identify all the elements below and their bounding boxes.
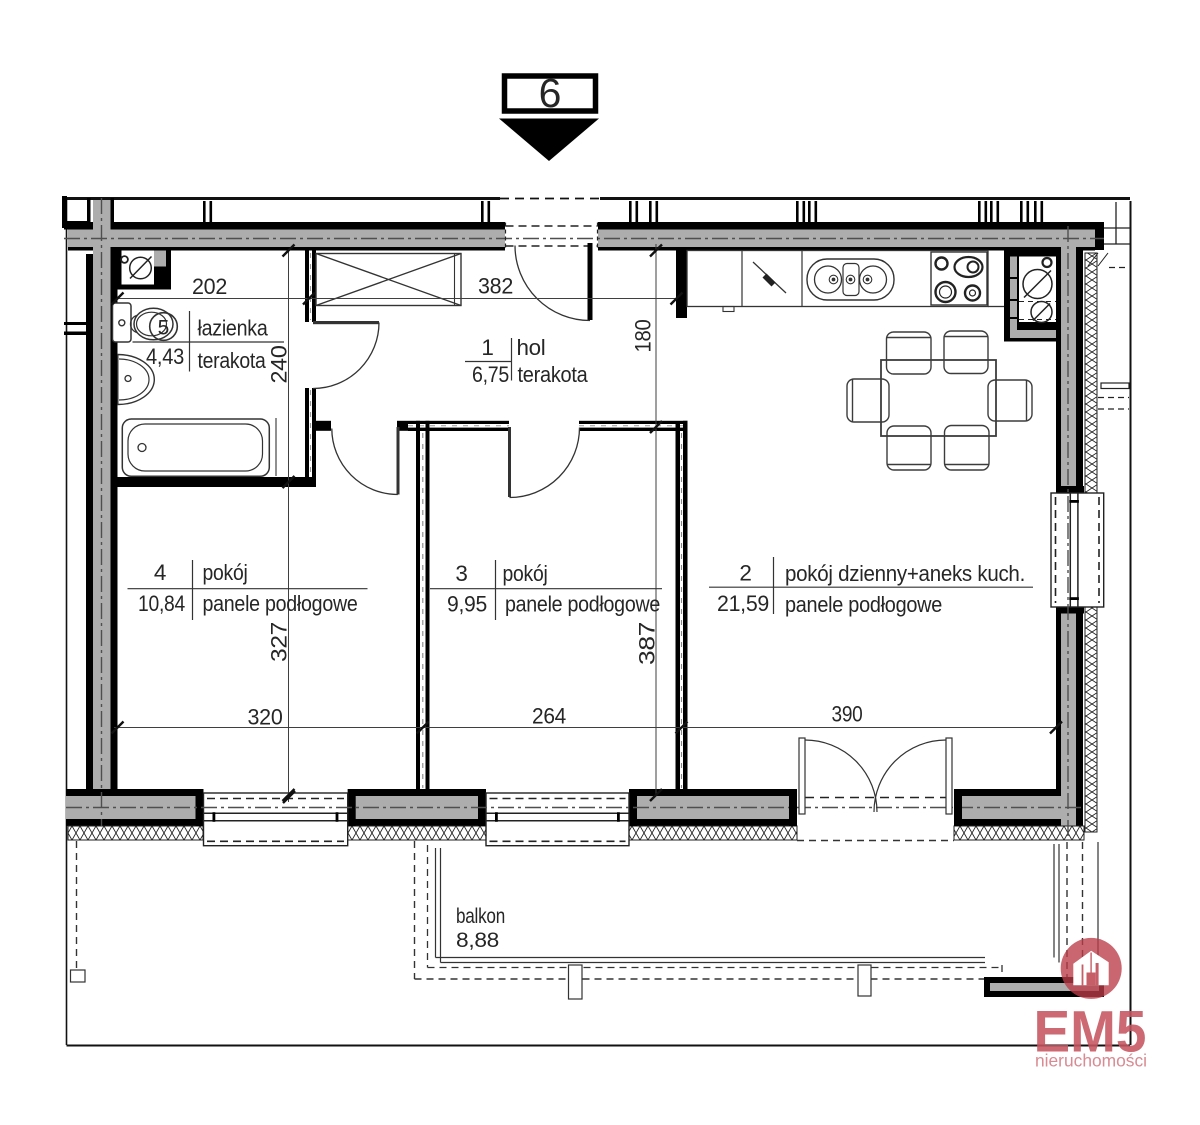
svg-text:panele podłogowe: panele podłogowe (505, 592, 660, 617)
svg-text:4,43: 4,43 (146, 344, 184, 369)
svg-text:terakota: terakota (518, 362, 589, 387)
svg-text:2: 2 (739, 561, 751, 586)
svg-text:3: 3 (455, 561, 467, 586)
svg-text:240: 240 (267, 346, 292, 384)
svg-text:pokój: pokój (203, 560, 248, 585)
svg-text:327: 327 (267, 622, 292, 662)
svg-text:terakota: terakota (198, 348, 267, 373)
svg-text:pokój dzienny+aneks kuch.: pokój dzienny+aneks kuch. (785, 561, 1025, 586)
svg-text:382: 382 (478, 274, 513, 299)
svg-text:320: 320 (248, 705, 283, 730)
svg-text:10,84: 10,84 (138, 591, 185, 616)
svg-text:264: 264 (532, 704, 566, 729)
svg-text:8,88: 8,88 (456, 929, 499, 952)
svg-text:6,75: 6,75 (472, 362, 509, 387)
svg-text:hol: hol (517, 335, 546, 360)
svg-text:łazienka: łazienka (198, 316, 269, 341)
svg-text:390: 390 (832, 702, 863, 727)
svg-text:387: 387 (635, 622, 660, 665)
svg-text:1: 1 (481, 335, 493, 360)
svg-text:9,95: 9,95 (447, 592, 487, 617)
svg-text:5: 5 (158, 317, 170, 340)
svg-text:balkon: balkon (456, 905, 505, 928)
svg-text:panele podłogowe: panele podłogowe (203, 591, 358, 616)
svg-text:pokój: pokój (503, 561, 548, 586)
svg-text:202: 202 (192, 274, 227, 299)
svg-text:nieruchomości: nieruchomości (1035, 1051, 1147, 1071)
svg-text:6: 6 (539, 70, 562, 116)
svg-text:4: 4 (154, 560, 166, 585)
svg-text:21,59: 21,59 (717, 591, 769, 616)
svg-text:panele podłogowe: panele podłogowe (785, 592, 942, 617)
svg-text:180: 180 (631, 320, 656, 353)
